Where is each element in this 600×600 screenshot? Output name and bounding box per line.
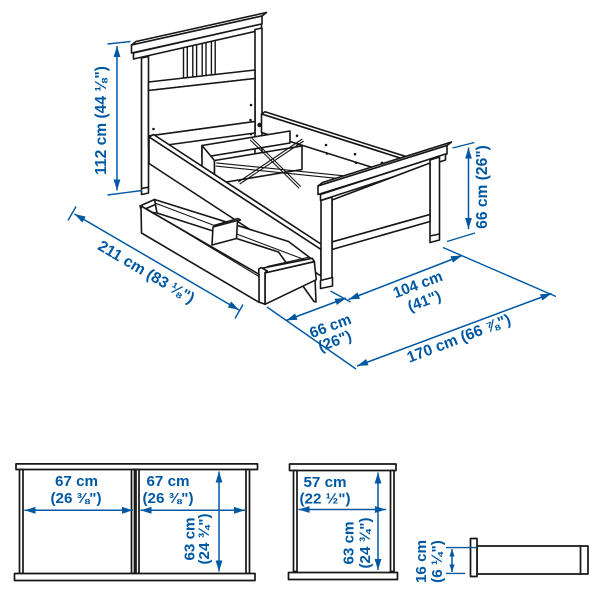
svg-text:(26 ⅜"): (26 ⅜")	[142, 490, 193, 507]
svg-text:(24 ¾"): (24 ¾")	[196, 513, 213, 564]
svg-text:(24 ¾"): (24 ¾")	[357, 517, 374, 568]
svg-text:57 cm: 57 cm	[303, 474, 346, 491]
svg-text:67 cm: 67 cm	[146, 473, 189, 490]
svg-text:(6 ¼"): (6 ¼")	[429, 540, 446, 583]
svg-text:16 cm: 16 cm	[413, 540, 430, 583]
svg-text:112 cm (44 ⅛"): 112 cm (44 ⅛")	[93, 66, 110, 175]
svg-text:(22 ½"): (22 ½")	[299, 491, 350, 508]
svg-text:63 cm: 63 cm	[341, 521, 358, 564]
svg-text:67 cm: 67 cm	[55, 473, 98, 490]
svg-text:(26 ⅜"): (26 ⅜")	[50, 490, 101, 507]
svg-text:66 cm (26"): 66 cm (26")	[474, 145, 491, 229]
